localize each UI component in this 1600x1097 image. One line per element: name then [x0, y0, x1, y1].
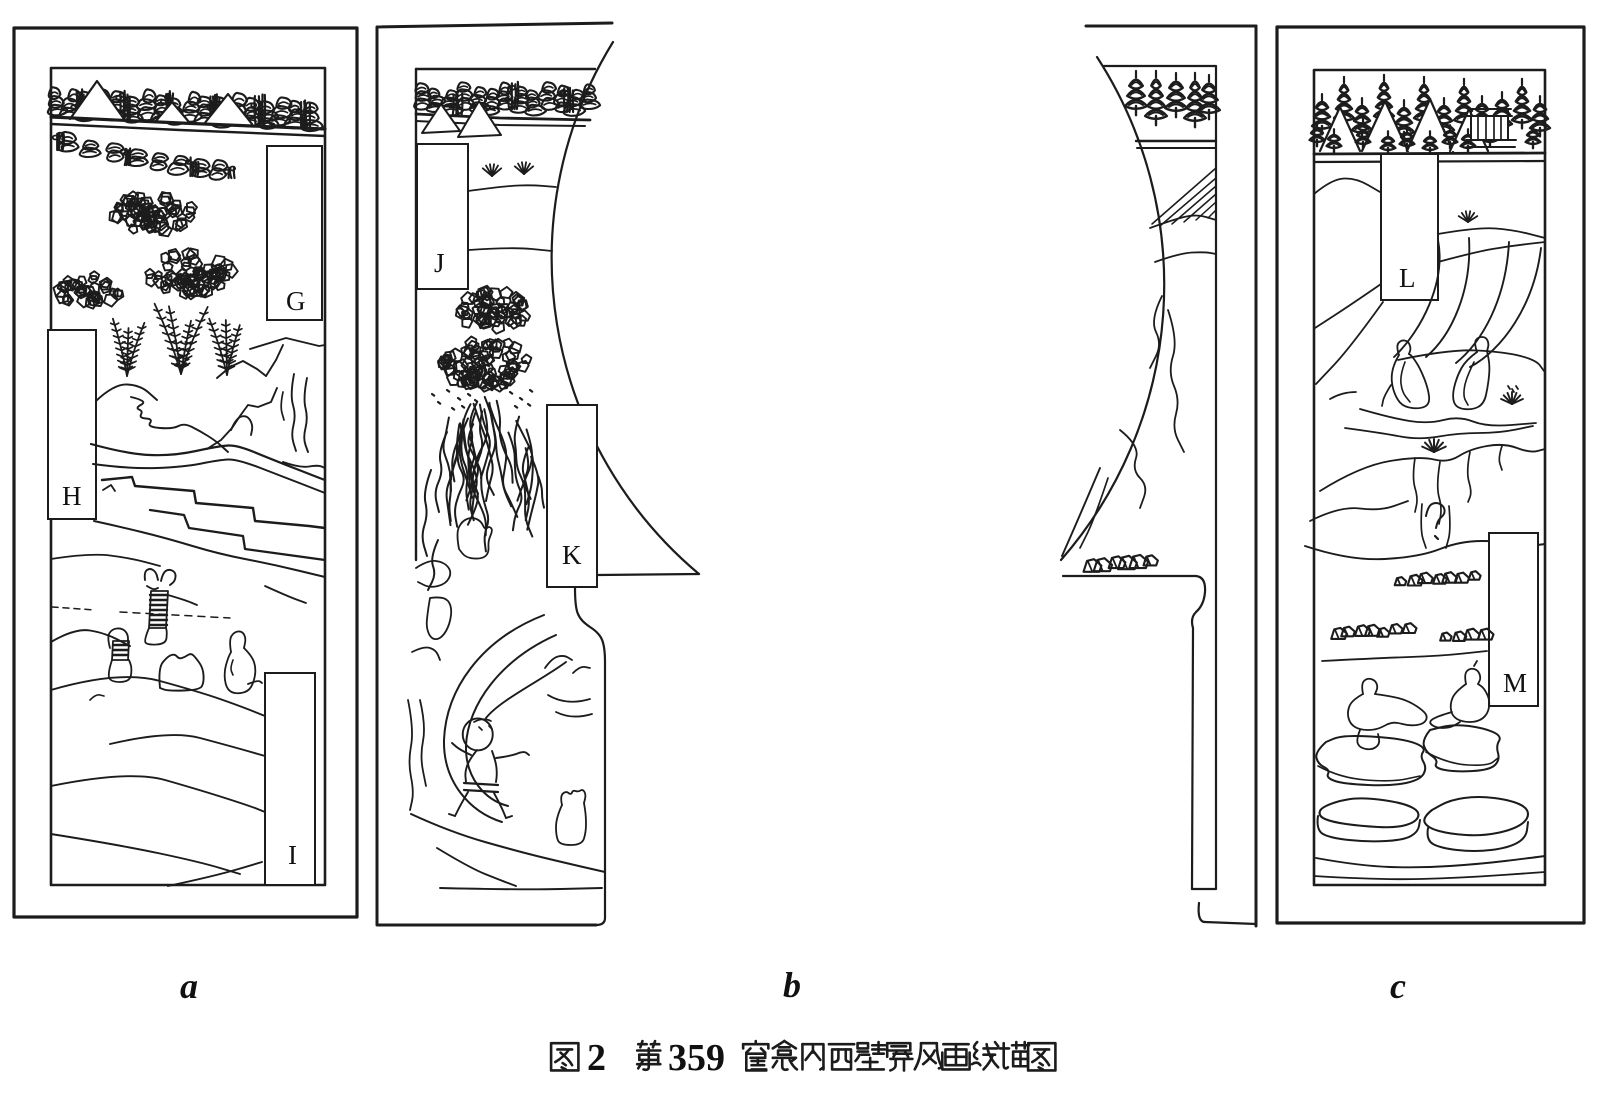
svg-text:L: L — [1399, 263, 1416, 293]
svg-text:J: J — [434, 248, 445, 278]
svg-text:H: H — [62, 481, 82, 511]
svg-text:I: I — [288, 840, 297, 870]
svg-text:G: G — [286, 286, 306, 316]
svg-text:K: K — [562, 540, 582, 570]
svg-text:359: 359 — [668, 1037, 725, 1079]
svg-text:2: 2 — [587, 1037, 606, 1079]
svg-text:b: b — [783, 965, 801, 1005]
svg-text:a: a — [180, 966, 198, 1006]
svg-text:c: c — [1390, 966, 1406, 1006]
svg-text:M: M — [1503, 668, 1527, 698]
